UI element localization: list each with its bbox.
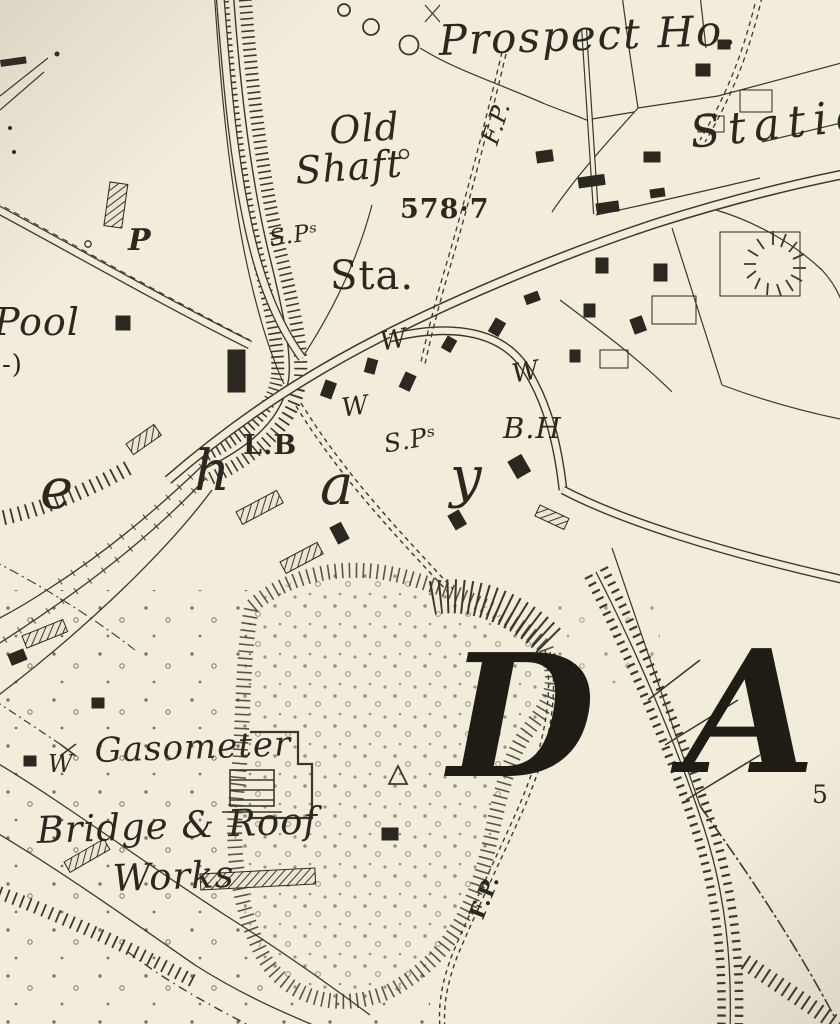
- label-placename-letter-a: a: [320, 458, 354, 514]
- label-gasometer: Gasometer: [94, 727, 292, 768]
- label-placename-letter-h: h: [194, 444, 231, 500]
- quarry-sunburst-symbol: [744, 231, 806, 296]
- label-district-letter-d: D: [448, 632, 595, 802]
- label-pool-continuation: -): [2, 352, 23, 378]
- label-pump: P: [128, 226, 152, 256]
- label-prospect-house: Prospect Ho.: [438, 10, 738, 62]
- label-well-upper: W: [378, 325, 410, 355]
- label-placename-letter-e: e: [40, 462, 74, 518]
- label-letter-box: L.B: [243, 432, 297, 459]
- roads: [0, 0, 840, 580]
- label-district-letter-a: A: [684, 628, 816, 798]
- label-well-right: W: [510, 357, 542, 387]
- label-partial-number: 5: [812, 782, 829, 807]
- label-pool: Pool: [0, 303, 80, 341]
- label-station-abbrev: Sta.: [330, 256, 414, 296]
- label-works-name-line1: Bridge & Roof: [36, 802, 319, 849]
- label-works-name-line2: Works: [112, 856, 235, 897]
- label-placename-letter-y: y: [450, 450, 483, 506]
- label-beer-house: B.H: [503, 414, 562, 443]
- label-spot-height: 578·7: [400, 196, 490, 223]
- map-extract: Prospect Ho. F.P. Old Shaft 578·7 Statio…: [0, 0, 840, 1024]
- label-well-mid: W: [340, 392, 371, 422]
- label-well-gasworks: W: [48, 752, 74, 776]
- label-old-shaft-line2: Shaft: [294, 145, 404, 190]
